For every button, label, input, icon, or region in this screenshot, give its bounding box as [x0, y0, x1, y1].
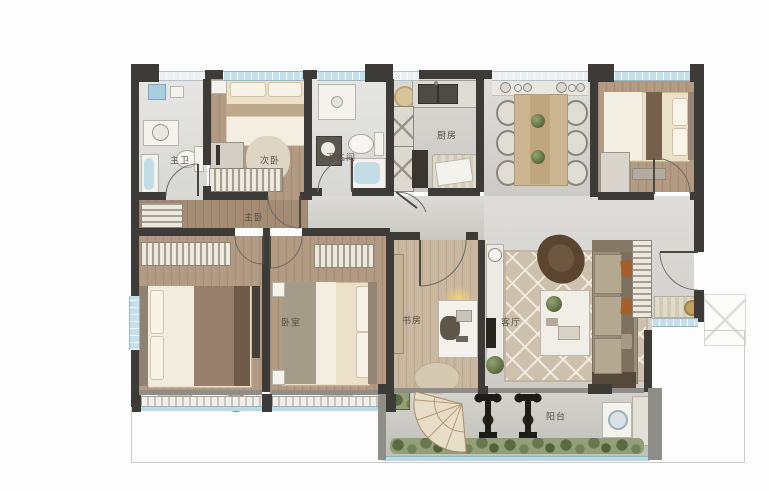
wall: [131, 80, 139, 236]
balcony-greenery: [390, 438, 644, 454]
glassware-icon: [568, 84, 576, 92]
wardrobe: [141, 242, 231, 266]
window: [223, 71, 303, 81]
bay-glass: [272, 406, 386, 411]
window: [393, 71, 419, 81]
headboard: [139, 286, 148, 386]
glassware-icon: [556, 82, 567, 93]
window-sill: [139, 390, 262, 395]
wardrobe: [209, 168, 283, 192]
glassware-icon: [576, 83, 585, 92]
pillow: [672, 98, 688, 126]
room-label-master-bedroom: 主卧: [244, 211, 264, 224]
tv-icon: [486, 318, 496, 348]
glassware-icon: [523, 83, 532, 92]
prep-table: [435, 158, 474, 187]
wall: [590, 79, 598, 197]
wall: [690, 192, 698, 200]
bed-throw: [234, 286, 250, 386]
wall: [694, 80, 704, 252]
balcony-slider: [488, 388, 588, 393]
tv-icon: [216, 145, 220, 165]
wall: [419, 70, 480, 79]
headboard: [368, 282, 377, 384]
window: [159, 71, 205, 81]
potted-plant-icon: [531, 114, 545, 128]
book-icon: [546, 318, 558, 326]
room-label-kitchen: 厨房: [437, 129, 457, 142]
room-label-study: 书房: [402, 314, 422, 327]
bathtub-inner: [144, 158, 154, 190]
stove-unit: [412, 150, 428, 188]
balcony-slider: [394, 388, 478, 393]
wall: [131, 394, 141, 412]
bed-throw: [646, 92, 662, 160]
window: [317, 71, 365, 81]
wall: [386, 394, 396, 412]
cushion: [621, 334, 632, 349]
wall: [139, 192, 166, 200]
wall: [303, 70, 317, 79]
bed-throw: [226, 104, 304, 116]
bed-blanket: [282, 282, 316, 384]
wall: [480, 70, 492, 79]
sofa-seat: [594, 338, 622, 374]
wall: [598, 192, 654, 200]
site-boundary: [744, 330, 745, 462]
kitchen-sink-icon: [438, 84, 458, 104]
shower-drain: [331, 96, 343, 108]
site-boundary: [131, 462, 745, 463]
laundry-basket-icon: [170, 86, 184, 98]
wall: [203, 79, 211, 165]
pillow: [672, 128, 688, 156]
site-boundary: [704, 330, 745, 331]
floor-plant-icon: [486, 356, 504, 374]
balcony-slider: [612, 388, 644, 393]
sofa-seat: [594, 254, 622, 294]
wall: [203, 186, 211, 200]
wall: [352, 188, 394, 196]
floor-plan: 主卫 次卧 卫生间 厨房 主卧 卧室 书房 客厅 阳台: [0, 0, 769, 491]
wall: [304, 79, 312, 196]
wall: [378, 384, 394, 394]
accent-cushion: [620, 259, 633, 277]
accent-cushion: [620, 298, 632, 316]
window-sill: [272, 390, 386, 395]
wall: [302, 228, 390, 236]
shoe-cabinet: [632, 240, 652, 318]
toilet-tank: [374, 132, 384, 156]
pillow: [230, 82, 266, 97]
site-boundary: [131, 407, 132, 462]
wall: [131, 350, 139, 394]
hall-cabinet: [141, 202, 183, 228]
room-label-secondary-bedroom: 次卧: [260, 154, 280, 167]
room-label-bedroom: 卧室: [281, 316, 301, 329]
wall: [131, 236, 139, 296]
tv-panel: [252, 286, 260, 358]
window: [652, 318, 698, 327]
window: [614, 71, 690, 81]
potted-plant-icon: [531, 150, 545, 164]
wall: [386, 79, 394, 192]
wall: [139, 228, 235, 236]
wall: [390, 232, 420, 240]
bar-sink-icon: [488, 248, 502, 262]
wall: [300, 192, 312, 200]
laptop-icon: [456, 310, 472, 322]
glassware-icon: [514, 84, 522, 92]
glassware-icon: [500, 82, 511, 93]
room-label-master-bath: 主卫: [170, 154, 190, 167]
balcony-wall: [648, 388, 662, 460]
wall: [428, 188, 480, 196]
wall: [478, 386, 488, 394]
bathtub-inner: [354, 162, 380, 184]
exterior-mask: [652, 325, 704, 395]
washing-machine-icon: [148, 84, 166, 100]
room-label-balcony: 阳台: [546, 410, 566, 423]
wall: [644, 330, 652, 392]
balcony-glass-rail: [382, 456, 650, 461]
bench: [632, 168, 666, 180]
tray-icon: [558, 326, 580, 340]
wardrobe: [600, 152, 630, 196]
wardrobe: [314, 244, 374, 268]
wall: [262, 394, 272, 412]
room-label-living-room: 客厅: [501, 316, 521, 329]
exercise-bike-icon: [514, 392, 542, 444]
pillow: [268, 82, 302, 97]
bed-sheet: [604, 92, 643, 160]
pillow: [150, 290, 164, 334]
wall: [478, 240, 485, 390]
bay-glass: [141, 406, 262, 411]
room-label-bathroom: 卫生间: [326, 151, 356, 164]
bed-sheet: [316, 282, 336, 384]
book-icon: [456, 336, 468, 342]
window: [492, 71, 588, 81]
wall: [263, 228, 270, 236]
nightstand: [272, 282, 285, 297]
wall: [205, 70, 223, 79]
wall: [211, 192, 268, 200]
kitchen-sink-icon: [418, 84, 438, 104]
wall: [262, 236, 270, 392]
sofa-seat: [594, 296, 622, 336]
wall: [476, 79, 484, 192]
master-bath-basin-icon: [152, 124, 169, 141]
washer-door-icon: [608, 410, 628, 430]
wall: [386, 236, 394, 392]
balcony-wall: [378, 394, 386, 460]
table-runner: [530, 94, 550, 184]
wall: [466, 232, 478, 240]
faucet-icon: [434, 81, 438, 85]
exercise-bike-icon: [474, 392, 502, 444]
nightstand: [211, 80, 227, 94]
pillow: [150, 336, 164, 380]
wall: [312, 188, 322, 196]
window: [129, 296, 140, 350]
potted-plant-icon: [546, 296, 562, 312]
nightstand: [272, 370, 285, 385]
sofa-arm: [592, 240, 636, 252]
wall: [588, 384, 612, 394]
ac-platform: [704, 294, 746, 346]
